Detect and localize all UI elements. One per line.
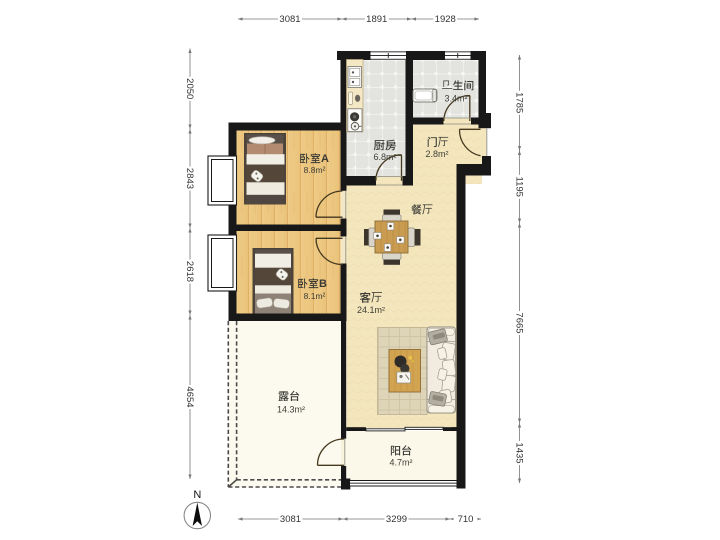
- svg-text:4.7m²: 4.7m²: [389, 458, 412, 468]
- svg-text:2.8m²: 2.8m²: [425, 149, 448, 159]
- svg-text:7665: 7665: [513, 312, 524, 333]
- svg-text:1891: 1891: [366, 14, 387, 25]
- svg-text:8.1m²: 8.1m²: [304, 291, 326, 301]
- svg-text:4654: 4654: [184, 386, 195, 407]
- svg-text:2050: 2050: [184, 78, 195, 99]
- svg-text:3.4m²: 3.4m²: [444, 94, 467, 104]
- svg-text:1928: 1928: [435, 14, 456, 25]
- svg-text:710: 710: [458, 514, 474, 525]
- svg-text:2843: 2843: [184, 168, 195, 189]
- svg-text:2618: 2618: [184, 261, 195, 282]
- svg-text:3081: 3081: [279, 14, 300, 25]
- svg-text:3299: 3299: [386, 514, 407, 525]
- svg-text:1435: 1435: [513, 442, 524, 463]
- svg-text:24.1m²: 24.1m²: [357, 305, 385, 315]
- svg-text:14.3m²: 14.3m²: [277, 405, 305, 415]
- svg-text:3081: 3081: [280, 514, 301, 525]
- svg-text:A: A: [321, 153, 329, 165]
- svg-text:8.8m²: 8.8m²: [304, 165, 326, 175]
- svg-text:1195: 1195: [513, 177, 524, 197]
- svg-text:1785: 1785: [513, 92, 524, 113]
- svg-text:B: B: [319, 278, 327, 290]
- svg-text:6.8m²: 6.8m²: [373, 152, 396, 162]
- svg-text:N: N: [193, 489, 201, 501]
